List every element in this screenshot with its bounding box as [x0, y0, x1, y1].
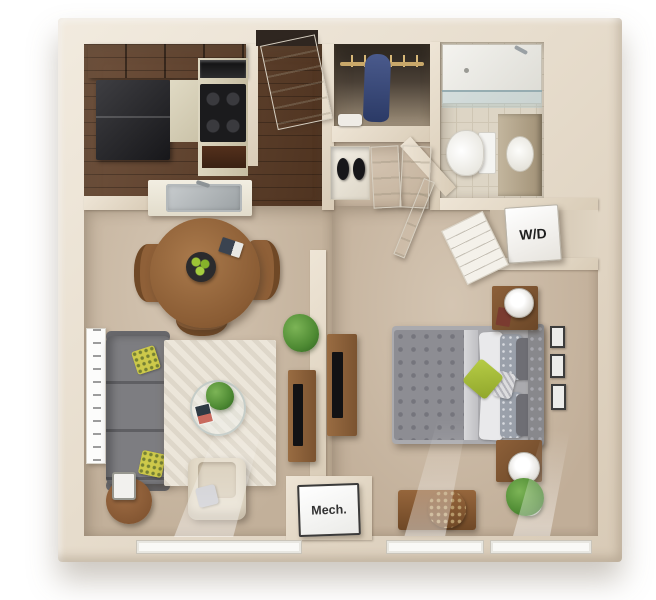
shower-glass-panel	[442, 90, 542, 108]
wall-art-canvas	[86, 328, 106, 464]
potted-plant	[283, 314, 319, 352]
closet-door	[370, 145, 401, 208]
oven	[202, 146, 246, 168]
window	[136, 540, 302, 554]
closet-linens	[338, 114, 362, 126]
window	[490, 540, 592, 554]
potted-plant	[506, 478, 544, 516]
table-lamp	[504, 288, 534, 318]
hanging-garment	[363, 54, 391, 123]
wall-picture-frame	[550, 354, 565, 378]
shoe-pair	[353, 158, 365, 180]
wall-picture-frame	[551, 384, 566, 410]
table-lamp	[112, 472, 136, 500]
dried-flower-arrangement	[428, 490, 466, 528]
range-hood	[200, 60, 246, 78]
shower-drain	[464, 68, 469, 73]
mechanical-label: Mech.	[311, 502, 347, 517]
sofa-throw-pillow	[138, 450, 166, 478]
bed-duvet	[394, 330, 464, 440]
bed-headboard	[528, 324, 544, 446]
kitchen-sink	[166, 184, 242, 212]
floorplan-render: W/D Mech.	[0, 0, 656, 600]
fruit-bowl	[186, 252, 216, 282]
bedroom-tv	[332, 352, 343, 418]
wall-picture-frame	[550, 326, 565, 348]
refrigerator	[96, 80, 170, 160]
washer-dryer-unit: W/D	[504, 204, 562, 264]
bathroom-sink	[506, 136, 534, 172]
window	[386, 540, 484, 554]
refrigerator-door-line	[96, 116, 170, 118]
living-room-tv	[293, 384, 303, 446]
stove-cooktop	[200, 84, 246, 142]
mechanical-unit: Mech.	[297, 483, 361, 537]
wall-segment	[332, 126, 432, 142]
shoe-pair	[337, 158, 349, 180]
toilet	[446, 130, 484, 176]
wall-segment	[84, 196, 150, 210]
washer-dryer-label: W/D	[519, 225, 547, 243]
